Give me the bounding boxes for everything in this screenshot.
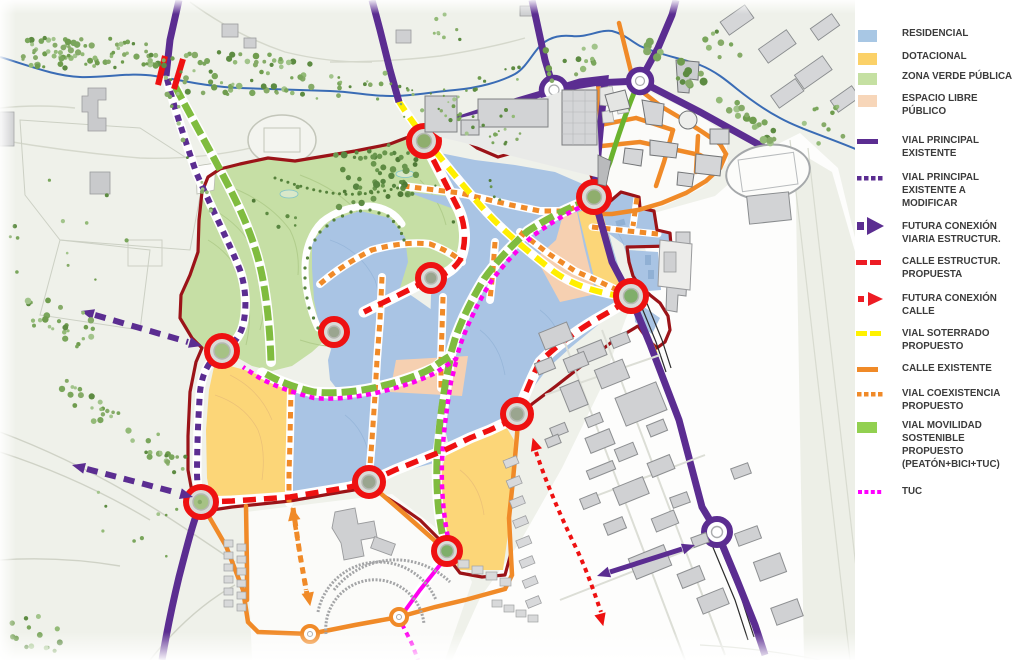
- svg-text:PÚBLICO: PÚBLICO: [902, 105, 946, 117]
- svg-text:DOTACIONAL: DOTACIONAL: [902, 51, 967, 62]
- svg-text:RESIDENCIAL: RESIDENCIAL: [902, 28, 968, 39]
- svg-text:FUTURA CONEXIÓN: FUTURA CONEXIÓN: [902, 292, 997, 304]
- svg-text:SOSTENIBLE: SOSTENIBLE: [902, 433, 965, 444]
- svg-text:VIAL COEXISTENCIA: VIAL COEXISTENCIA: [902, 388, 1000, 399]
- svg-text:EXISTENTE A: EXISTENTE A: [902, 185, 966, 196]
- svg-text:VIAL PRINCIPAL: VIAL PRINCIPAL: [902, 172, 979, 183]
- svg-text:VIAL PRINCIPAL: VIAL PRINCIPAL: [902, 135, 979, 146]
- svg-text:CALLE: CALLE: [902, 306, 935, 317]
- svg-text:CALLE ESTRUCTUR.: CALLE ESTRUCTUR.: [902, 256, 1001, 267]
- svg-text:ESPACIO LIBRE: ESPACIO LIBRE: [902, 93, 978, 104]
- svg-text:VIAL MOVILIDAD: VIAL MOVILIDAD: [902, 420, 982, 431]
- svg-text:PROPUESTA: PROPUESTA: [902, 269, 962, 280]
- svg-text:CALLE EXISTENTE: CALLE EXISTENTE: [902, 363, 992, 374]
- svg-text:VIARIA ESTRUCTUR.: VIARIA ESTRUCTUR.: [902, 234, 1001, 245]
- svg-text:MODIFICAR: MODIFICAR: [902, 198, 958, 209]
- svg-text:FUTURA CONEXIÓN: FUTURA CONEXIÓN: [902, 220, 997, 232]
- svg-text:PROPUESTO: PROPUESTO: [902, 341, 964, 352]
- svg-text:TUC: TUC: [902, 486, 922, 497]
- svg-text:PROPUESTO: PROPUESTO: [902, 401, 964, 412]
- svg-text:VIAL SOTERRADO: VIAL SOTERRADO: [902, 328, 990, 339]
- svg-text:(PEATÓN+BICI+TUC): (PEATÓN+BICI+TUC): [902, 458, 1000, 470]
- svg-text:EXISTENTE: EXISTENTE: [902, 148, 957, 159]
- svg-text:ZONA VERDE PÚBLICA: ZONA VERDE PÚBLICA: [902, 70, 1012, 82]
- svg-text:PROPUESTO: PROPUESTO: [902, 446, 964, 457]
